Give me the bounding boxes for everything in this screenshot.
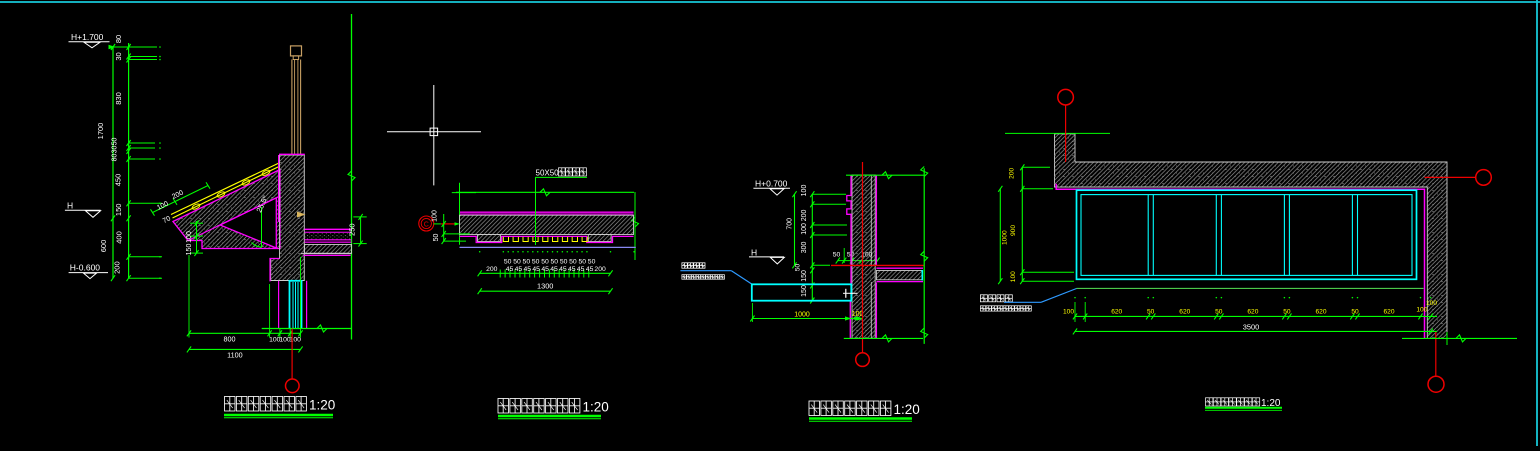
svg-text:100: 100	[1416, 307, 1427, 314]
svg-text:50: 50	[1215, 308, 1223, 315]
svg-text:200: 200	[486, 266, 498, 273]
svg-text:200: 200	[113, 261, 122, 274]
svg-text:1000: 1000	[1002, 230, 1009, 245]
svg-text:50: 50	[1351, 308, 1359, 315]
svg-text:200: 200	[801, 209, 808, 221]
svg-text:100: 100	[852, 311, 864, 318]
svg-text:100: 100	[1426, 300, 1437, 307]
svg-text:50: 50	[513, 259, 521, 266]
svg-text:150: 150	[801, 270, 808, 282]
svg-text:45: 45	[515, 266, 523, 273]
svg-text:620: 620	[1315, 308, 1326, 315]
svg-text:100: 100	[1010, 271, 1017, 282]
svg-text:H-0.600: H-0.600	[70, 263, 101, 273]
svg-text:700: 700	[787, 218, 794, 230]
svg-text:45: 45	[559, 266, 567, 273]
svg-text:200: 200	[594, 266, 606, 273]
svg-text:50: 50	[588, 259, 596, 266]
svg-text:45: 45	[524, 266, 532, 273]
svg-text:250: 250	[348, 223, 357, 236]
svg-text:100: 100	[801, 223, 808, 235]
svg-text:150: 150	[186, 244, 193, 256]
svg-text:45: 45	[577, 266, 585, 273]
svg-text:600: 600	[99, 240, 108, 253]
svg-text:1300: 1300	[537, 281, 553, 290]
svg-text:50: 50	[1283, 308, 1291, 315]
svg-text:100: 100	[801, 185, 808, 197]
svg-text:620: 620	[1247, 308, 1258, 315]
svg-text:100: 100	[186, 231, 193, 243]
svg-text:300: 300	[801, 241, 808, 253]
svg-text:1700: 1700	[96, 123, 105, 140]
svg-text:50: 50	[1147, 308, 1155, 315]
svg-text:45: 45	[506, 266, 514, 273]
svg-text:50: 50	[532, 259, 540, 266]
svg-text:30: 30	[114, 52, 123, 60]
svg-text:200: 200	[1009, 167, 1016, 178]
svg-text:620: 620	[1383, 308, 1394, 315]
svg-text:45: 45	[532, 266, 540, 273]
svg-text:50: 50	[551, 259, 559, 266]
svg-text:80: 80	[114, 35, 123, 43]
svg-text:830: 830	[114, 92, 123, 105]
svg-text:1000: 1000	[794, 311, 810, 318]
svg-text:45: 45	[586, 266, 594, 273]
svg-text:150: 150	[114, 204, 123, 217]
svg-text:150: 150	[801, 285, 808, 297]
svg-text:1:20: 1:20	[309, 398, 335, 413]
svg-text:30: 30	[112, 146, 119, 154]
svg-text:45: 45	[568, 266, 576, 273]
svg-text:50: 50	[560, 259, 568, 266]
svg-text:100: 100	[1063, 308, 1074, 315]
svg-text:50: 50	[795, 264, 802, 272]
svg-text:H+1.700: H+1.700	[71, 32, 104, 42]
svg-text:450: 450	[114, 174, 123, 187]
svg-text:900: 900	[1010, 225, 1017, 236]
svg-text:3500: 3500	[1243, 322, 1259, 331]
svg-text:50: 50	[504, 259, 512, 266]
svg-text:45: 45	[541, 266, 549, 273]
svg-text:H+0.700: H+0.700	[755, 178, 788, 188]
svg-text:100: 100	[290, 337, 302, 344]
svg-text:50: 50	[112, 138, 119, 146]
svg-text:H: H	[751, 247, 757, 257]
svg-text:80: 80	[112, 154, 119, 162]
svg-text:H: H	[67, 201, 73, 211]
svg-text:50X50: 50X50	[536, 169, 560, 178]
svg-text:50: 50	[433, 234, 440, 242]
svg-text:50: 50	[833, 251, 841, 258]
svg-text:1:20: 1:20	[583, 400, 609, 415]
svg-text:620: 620	[1179, 308, 1190, 315]
svg-text:1:20: 1:20	[894, 402, 920, 417]
svg-text:800: 800	[224, 335, 236, 344]
svg-text:100: 100	[432, 210, 439, 222]
svg-text:50: 50	[569, 259, 577, 266]
svg-text:1100: 1100	[227, 350, 242, 359]
svg-text:C: C	[424, 222, 429, 229]
svg-text:50: 50	[578, 259, 586, 266]
svg-text:400: 400	[115, 231, 124, 244]
svg-text:45: 45	[550, 266, 558, 273]
svg-text:50: 50	[541, 259, 549, 266]
svg-text:50: 50	[523, 259, 531, 266]
svg-text:620: 620	[1111, 308, 1122, 315]
